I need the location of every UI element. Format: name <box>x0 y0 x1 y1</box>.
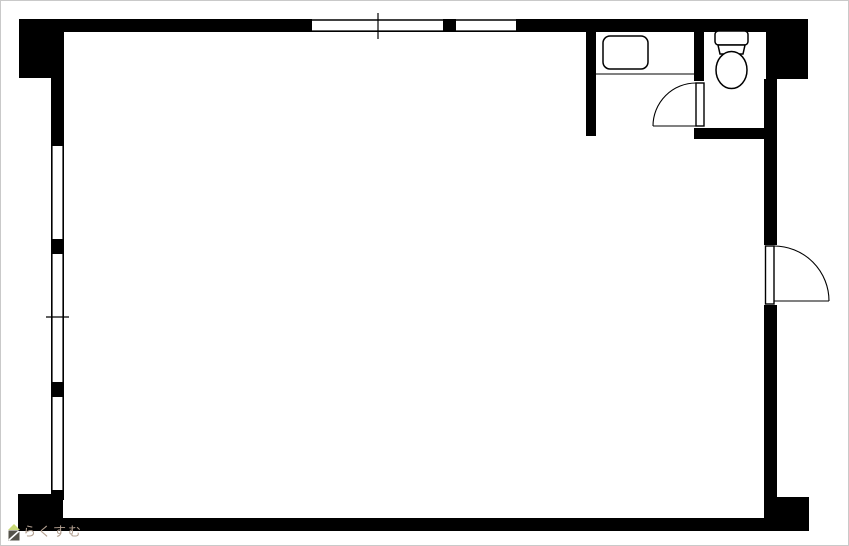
entrance-door <box>766 246 830 304</box>
right-wall-upper <box>764 79 777 245</box>
windows <box>46 13 516 490</box>
entrance-door-leaf <box>766 246 775 304</box>
toilet-door-leaf <box>696 83 704 126</box>
toilet-icon <box>715 31 748 89</box>
exterior-walls <box>18 19 809 531</box>
right-wall-lower <box>764 305 777 497</box>
top-window-2 <box>456 20 516 31</box>
floor-plan-image: らくすむ <box>0 0 849 546</box>
top-wall-window-pier <box>443 19 456 32</box>
corner-block-top-right <box>766 19 808 79</box>
washroom-left-wall <box>586 32 596 136</box>
left-window-3 <box>52 397 63 490</box>
toilet-tank <box>715 31 748 45</box>
top-window-1 <box>312 13 443 39</box>
left-window-1 <box>52 146 63 239</box>
toilet-door-swing-arc <box>653 83 696 126</box>
toilet-room-bottom-wall <box>694 128 766 139</box>
top-wall-segment-right <box>516 19 766 32</box>
left-wall-pier-1 <box>51 239 64 254</box>
floor-plan-canvas <box>1 1 849 546</box>
bottom-wall <box>63 518 764 531</box>
left-window-2 <box>46 254 69 382</box>
toilet-door <box>653 83 704 126</box>
entrance-door-swing-arc <box>774 246 829 301</box>
toilet-room <box>694 31 766 139</box>
washroom-divider-wall <box>694 32 704 81</box>
left-wall-upper <box>51 78 64 146</box>
toilet-bowl <box>716 52 747 89</box>
corner-block-bottom-right <box>764 497 809 531</box>
sink-icon <box>603 36 648 69</box>
doors <box>653 83 829 304</box>
left-wall-pier-2 <box>51 382 64 397</box>
corner-block-bottom-left <box>18 494 63 531</box>
corner-block-top-left <box>19 19 64 78</box>
